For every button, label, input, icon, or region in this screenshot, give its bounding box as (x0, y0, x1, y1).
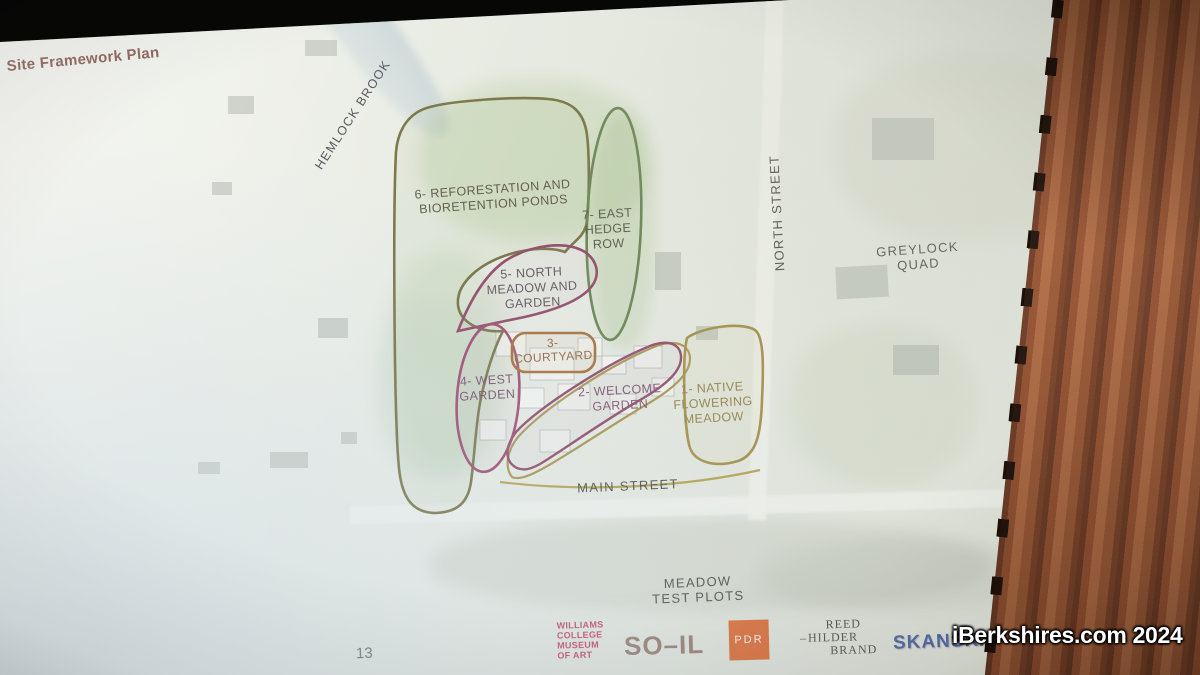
building-footprint (318, 318, 348, 338)
building-footprint (270, 452, 308, 468)
zone-7-label: 7- EAST HEDGE ROW (582, 206, 634, 253)
zone-1-label: 1- NATIVE FLOWERING MEADOW (672, 379, 754, 427)
zone-6-label: 6- REFORESTATION AND BIORETENTION PONDS (414, 177, 572, 217)
north-street-label: NORTH STREET (766, 154, 787, 271)
building-footprint (696, 326, 718, 340)
building-footprint (655, 252, 681, 290)
slide-title: Site Framework Plan (6, 44, 160, 75)
zone-5-label: 5- NORTH MEADOW AND GARDEN (485, 264, 578, 313)
so-il-logo: SO–IL (624, 629, 705, 662)
building-footprint (872, 118, 934, 160)
building-footprint (305, 40, 337, 56)
reed-hilderbrand-logo: REED HILDER BRAND (799, 617, 877, 659)
wcma-logo: WILLIAMS COLLEGE MUSEUM OF ART (556, 619, 604, 661)
greylock-quad-label: GREYLOCK QUAD (876, 239, 961, 275)
zone-3-label: 3- COURTYARD (513, 334, 593, 366)
main-street-road (350, 488, 1070, 525)
hemlock-brook-water (254, 0, 466, 151)
building-footprint (893, 345, 939, 375)
zone-4-label: 4- WEST GARDEN (458, 372, 515, 404)
zone-2-label: 2- WELCOME GARDEN (578, 381, 663, 415)
page-number: 13 (356, 645, 373, 663)
pdr-logo: PDR (728, 619, 769, 660)
iberkshires-watermark: iBerkshires.com 2024 (952, 622, 1183, 649)
meadow-test-plots-label: MEADOW TEST PLOTS (651, 573, 744, 608)
building-footprint (228, 96, 254, 114)
lawn-area (790, 325, 975, 485)
photo-frame: HEMLOCK BROOK NORTH STREET MAIN STREET G… (0, 0, 1200, 675)
building-footprint (212, 182, 232, 195)
building-footprint (198, 462, 220, 474)
main-street-label: MAIN STREET (577, 476, 679, 496)
hemlock-brook-label: HEMLOCK BROOK (312, 58, 394, 173)
building-footprint (341, 432, 357, 444)
